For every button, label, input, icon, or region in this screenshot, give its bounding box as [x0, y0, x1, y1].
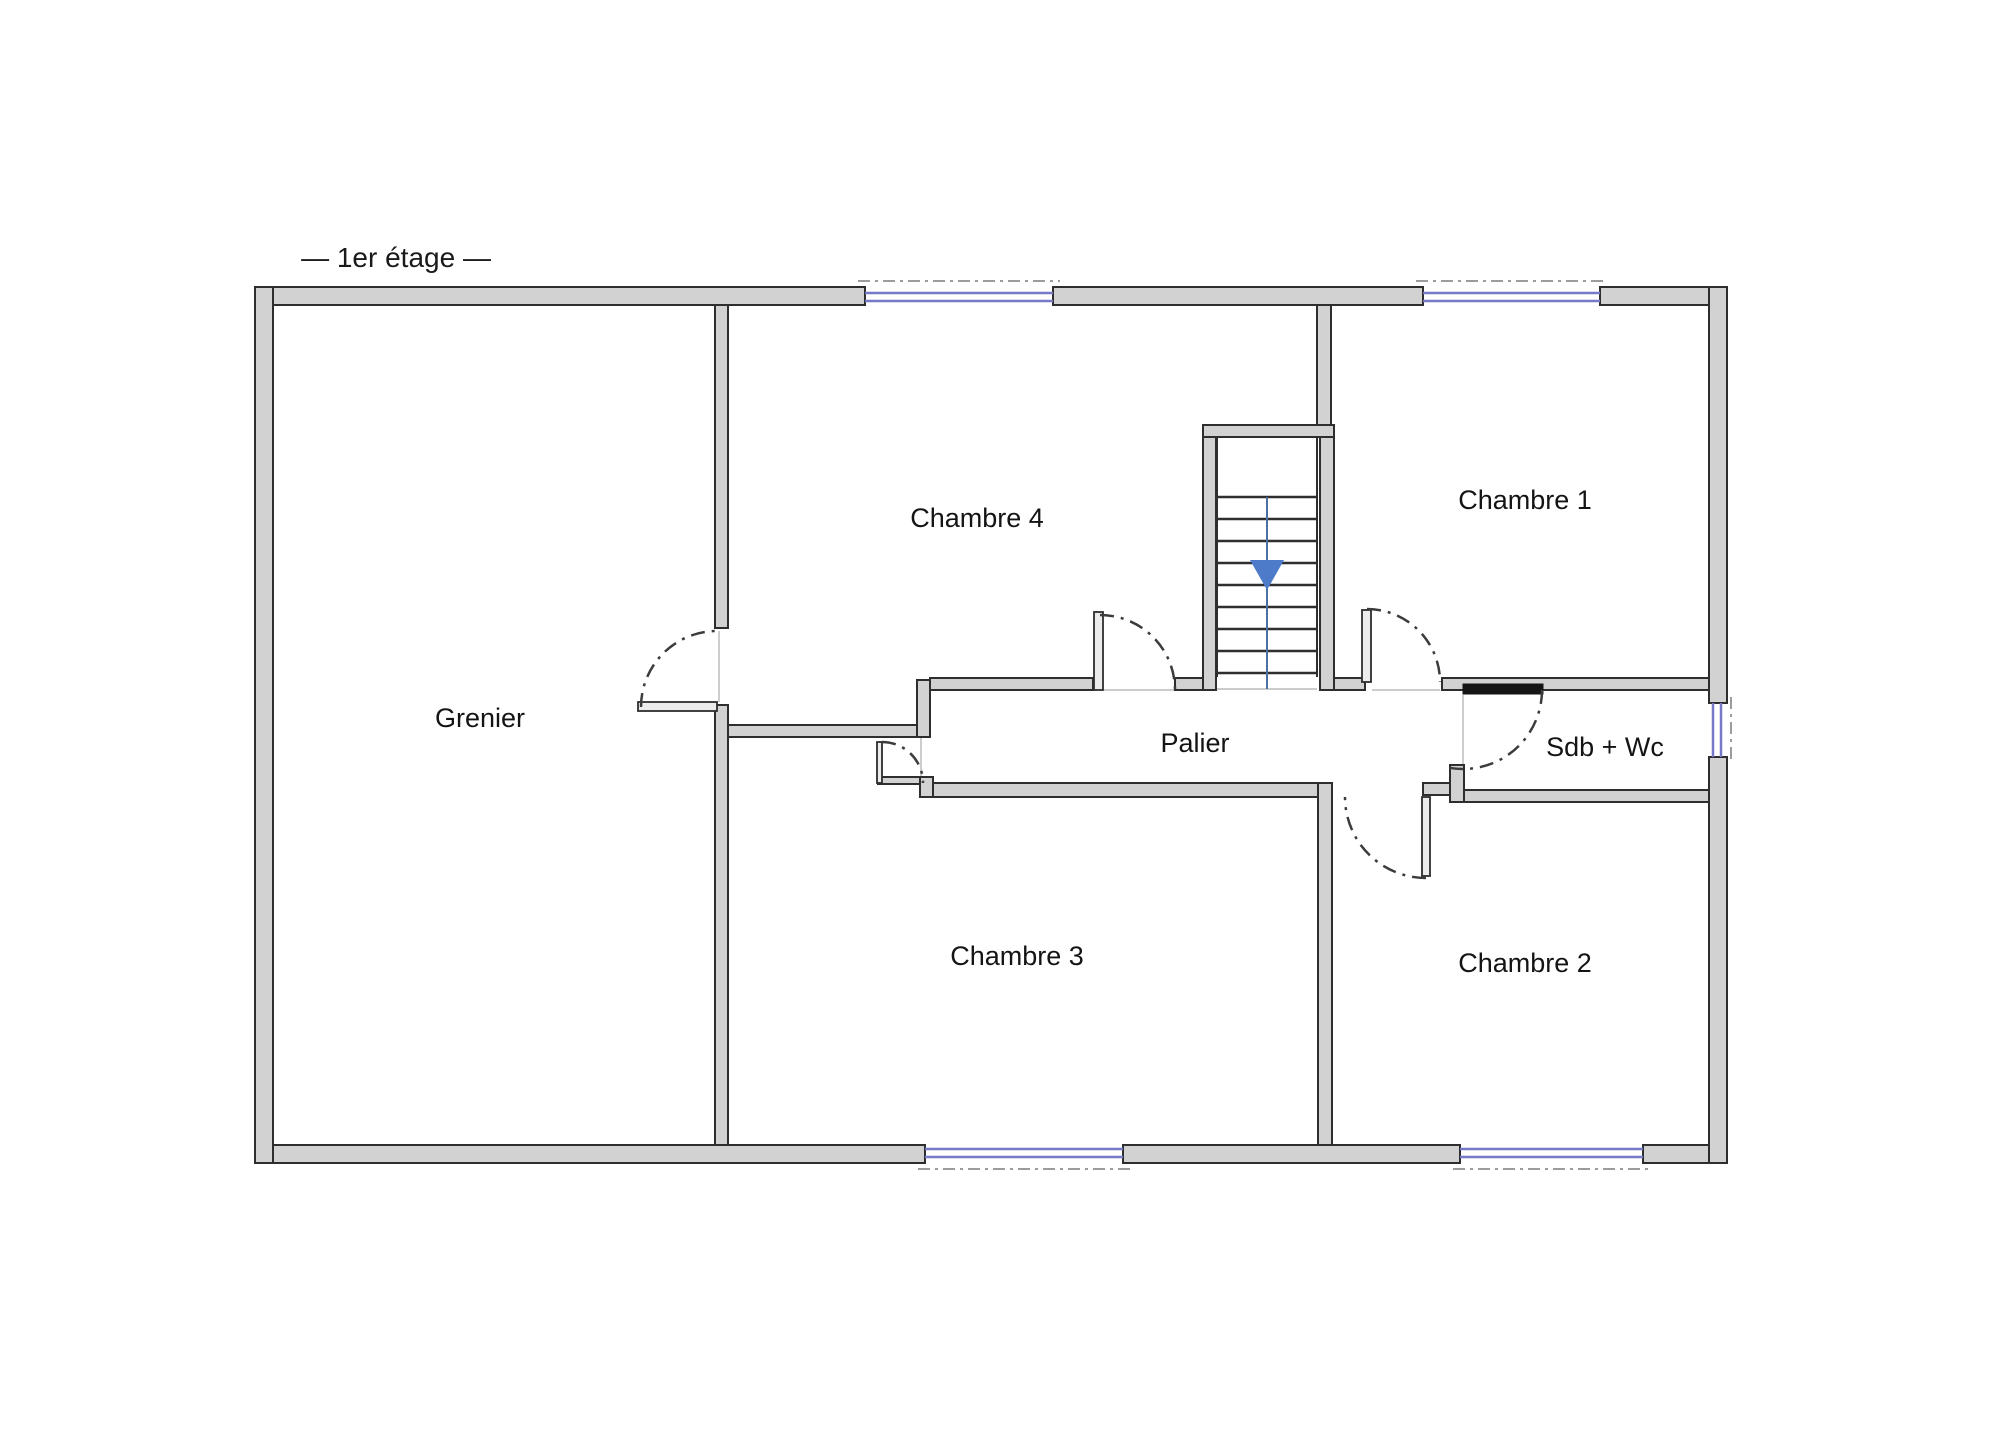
sdb-notch-pillar	[1450, 765, 1464, 802]
grenier-wall-upper	[715, 305, 728, 628]
grenier-door-swing	[641, 631, 717, 707]
chambre4-chambre1-divider	[1317, 305, 1331, 425]
chambre3-chambre2-divider	[1318, 783, 1332, 1145]
exterior-right-wall-lower	[1709, 757, 1727, 1163]
chambre4-bottom-left-wall	[728, 725, 917, 737]
floorplan-page: — 1er étage — Grenier Chambre 4 Chambre …	[0, 0, 1999, 1448]
exterior-right-wall-upper	[1709, 287, 1727, 703]
chambre1-door-jamb-wall	[1334, 678, 1365, 690]
room-label-chambre2: Chambre 2	[1458, 948, 1592, 978]
exterior-top-wall-left	[255, 287, 865, 305]
stairwell-left-wall	[1203, 425, 1216, 690]
chambre1-door-leaf	[1362, 610, 1371, 682]
palier-top-wall	[930, 678, 1093, 690]
chambre4-door-leaf	[1094, 612, 1103, 690]
exterior-top-wall-middle	[1053, 287, 1423, 305]
room-label-chambre1: Chambre 1	[1458, 485, 1592, 515]
palier-bottom-jog-wall	[920, 777, 933, 797]
grenier-door-leaf	[638, 702, 717, 711]
chambre2-door-swing	[1345, 797, 1426, 878]
exterior-top-wall-right	[1600, 287, 1727, 305]
chambre2-top-wall-stub	[1423, 783, 1452, 795]
room-label-chambre3: Chambre 3	[950, 941, 1084, 971]
exterior-bottom-wall-left	[255, 1145, 925, 1163]
exterior-left-wall	[255, 287, 273, 1163]
floorplan-svg: — 1er étage — Grenier Chambre 4 Chambre …	[0, 0, 1999, 1448]
chambre4-door-swing	[1100, 615, 1175, 690]
palier-bottom-wall	[933, 783, 1320, 797]
chambre2-door-leaf	[1422, 797, 1430, 876]
room-label-grenier: Grenier	[435, 703, 525, 733]
sdb-sliding-door-bar	[1463, 684, 1543, 694]
palier-bottom-stub-wall	[878, 777, 925, 784]
room-label-palier: Palier	[1160, 728, 1229, 758]
chambre1-door-swing	[1367, 609, 1440, 682]
floor-title: — 1er étage —	[301, 242, 491, 273]
room-label-chambre4: Chambre 4	[910, 503, 1044, 533]
room-label-sdb: Sdb + Wc	[1546, 732, 1664, 762]
grenier-wall-lower	[715, 705, 728, 1145]
chambre3-door-leaf	[877, 742, 882, 783]
exterior-bottom-wall-middle	[1123, 1145, 1460, 1163]
palier-left-jog-wall	[917, 680, 930, 737]
sdb-bottom-wall	[1452, 790, 1709, 802]
stairwell-top-wall	[1203, 425, 1334, 437]
stairwell-right-wall	[1320, 437, 1334, 690]
